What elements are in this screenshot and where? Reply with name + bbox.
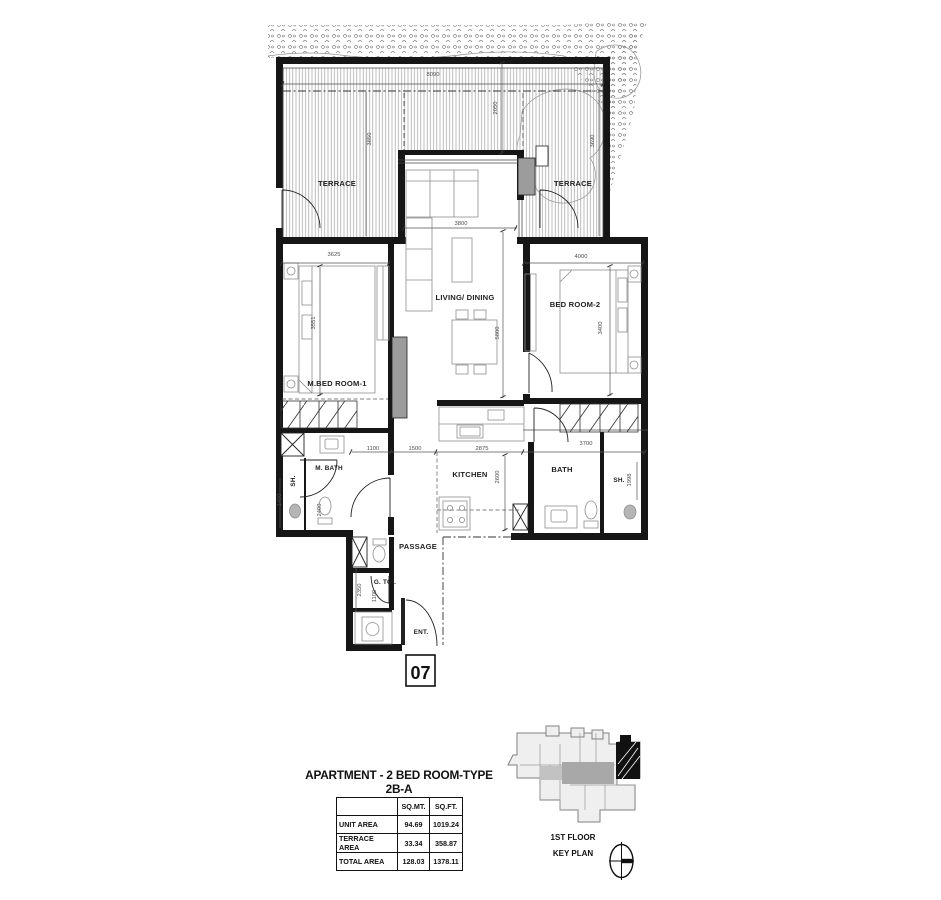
unit-area-sqft: 1019.24 (430, 816, 463, 834)
room-label-guest-toilet: G. TOI. (374, 579, 396, 586)
dim-4000: 4000 (575, 254, 588, 260)
area-table-corner-cell (337, 798, 398, 816)
total-area-sqft: 1378.11 (430, 853, 463, 871)
key-plan-floor-label: 1ST FLOOR (540, 833, 606, 842)
dim-1400: 1400 (277, 494, 283, 507)
terrace-area-sqmt: 33.34 (398, 834, 430, 853)
room-label-living-dining: LIVING/ DINING (436, 293, 495, 302)
dim-3400: 3400 (598, 322, 604, 335)
dim-1998: 1998 (627, 474, 633, 487)
area-table-header-sqmt: SQ.MT. (398, 798, 430, 816)
dim-2875: 2875 (476, 446, 489, 452)
dim-3800: 3800 (455, 221, 468, 227)
dim-3850: 3850 (367, 133, 373, 146)
room-label-shower-left: SH. (290, 475, 297, 486)
key-plan-label: KEY PLAN (540, 849, 606, 858)
terrace-area-label: TERRACE AREA (337, 834, 398, 853)
room-label-terrace-right: TERRACE (554, 179, 592, 188)
key-plan-map (508, 726, 640, 822)
dim-3551: 3551 (311, 317, 317, 330)
unit-number: 07 (410, 663, 430, 683)
table-row: TERRACE AREA 33.34 358.87 (337, 834, 463, 853)
room-label-entrance: ENT. (414, 629, 429, 636)
dim-3700: 3700 (580, 441, 593, 447)
area-table: SQ.MT. SQ.FT. UNIT AREA 94.69 1019.24 TE… (336, 797, 463, 871)
area-table-header-row: SQ.MT. SQ.FT. (337, 798, 463, 816)
room-label-m-bath: M. BATH (315, 465, 343, 472)
dim-8090: 8090 (427, 72, 440, 78)
north-arrow-icon (609, 842, 634, 880)
room-label-passage: PASSAGE (399, 542, 437, 551)
dim-2050: 2050 (493, 102, 499, 115)
terrace-area-sqft: 358.87 (430, 834, 463, 853)
unit-number-box: 07 (406, 655, 435, 686)
room-label-bedroom-2: BED ROOM-2 (550, 300, 601, 309)
unit-area-sqmt: 94.69 (398, 816, 430, 834)
floor-plan-drawing: 07 TERRACE TERRACE LIVING/ DINING BED RO… (0, 0, 941, 900)
room-label-bath: BATH (551, 465, 572, 474)
dim-1100: 1100 (367, 446, 379, 452)
dim-3690: 3690 (590, 135, 596, 148)
unit-area-label: UNIT AREA (337, 816, 398, 834)
table-row: TOTAL AREA 128.03 1378.11 (337, 853, 463, 871)
dim-1100-toilet: 1100 (372, 590, 378, 602)
dim-3625: 3625 (328, 252, 341, 258)
room-label-shower-right: SH. (613, 477, 624, 484)
dim-5800: 5800 (495, 327, 501, 340)
dim-2600: 2600 (495, 471, 501, 484)
dim-2400: 2400 (317, 504, 323, 517)
total-area-label: TOTAL AREA (337, 853, 398, 871)
apartment-title: APARTMENT - 2 BED ROOM-TYPE 2B-A (296, 768, 502, 796)
floor-plan-page: 07 TERRACE TERRACE LIVING/ DINING BED RO… (0, 0, 941, 900)
total-area-sqmt: 128.03 (398, 853, 430, 871)
room-label-m-bedroom-1: M.BED ROOM-1 (307, 379, 367, 388)
table-row: UNIT AREA 94.69 1019.24 (337, 816, 463, 834)
entrance-door-leaf (401, 598, 405, 645)
dim-2350: 2350 (357, 584, 363, 597)
room-label-kitchen: KITCHEN (452, 470, 487, 479)
room-label-terrace-left: TERRACE (318, 179, 356, 188)
dim-1500: 1500 (409, 446, 422, 452)
area-table-header-sqft: SQ.FT. (430, 798, 463, 816)
